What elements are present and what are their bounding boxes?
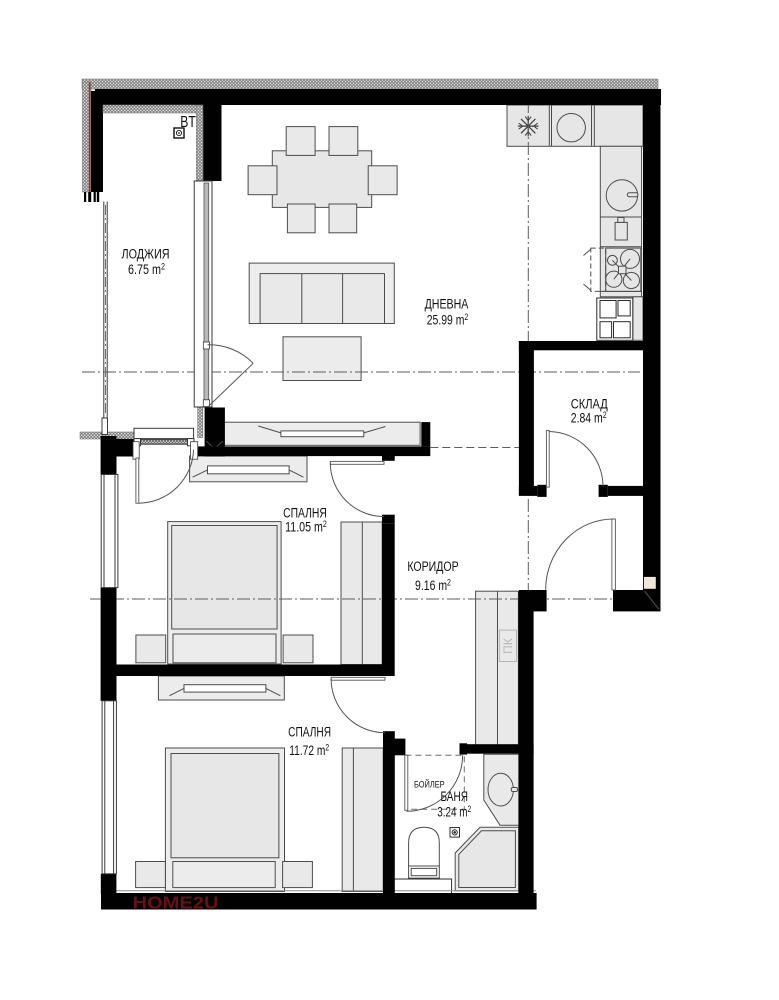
- svg-text:ПК: ПК: [501, 638, 515, 654]
- svg-text:ДНЕВНА: ДНЕВНА: [425, 297, 469, 312]
- svg-text:2.84 m2: 2.84 m2: [571, 410, 607, 426]
- svg-text:3.24 m2: 3.24 m2: [437, 804, 471, 820]
- svg-text:БАНЯ: БАНЯ: [440, 789, 468, 804]
- svg-text:25.99 m2: 25.99 m2: [427, 312, 469, 328]
- svg-text:СПАЛНЯ: СПАЛНЯ: [283, 505, 327, 520]
- svg-text:11.72 m2: 11.72 m2: [289, 743, 329, 759]
- svg-text:9.16 m2: 9.16 m2: [415, 578, 451, 594]
- svg-text:БОЙЛЕР: БОЙЛЕР: [414, 779, 445, 790]
- svg-text:11.05 m2: 11.05 m2: [285, 519, 327, 535]
- svg-text:ЛОДЖИЯ: ЛОДЖИЯ: [122, 247, 170, 262]
- svg-text:СПАЛНЯ: СПАЛНЯ: [288, 725, 331, 740]
- svg-text:HOME2U: HOME2U: [133, 893, 219, 913]
- svg-text:6.75 m2: 6.75 m2: [128, 262, 165, 278]
- svg-text:КОРИДОР: КОРИДОР: [407, 559, 458, 574]
